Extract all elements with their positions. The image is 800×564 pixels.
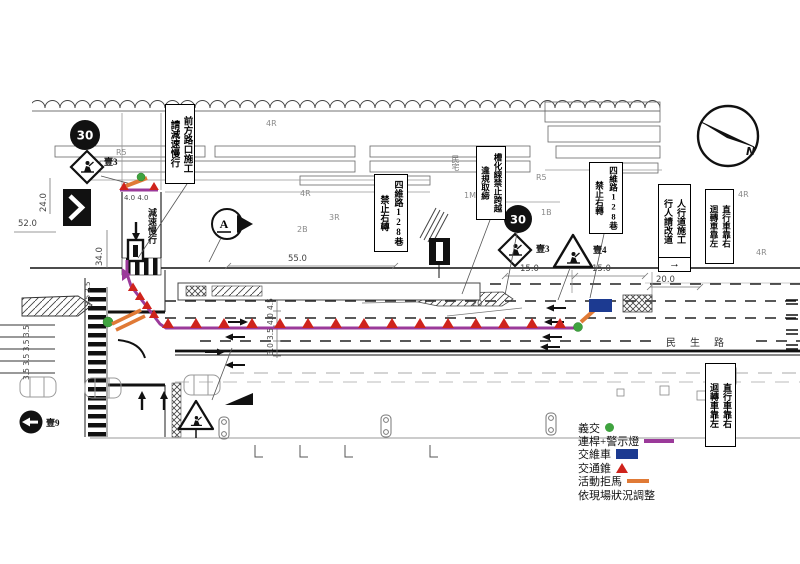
work-area-hatch bbox=[623, 295, 652, 312]
lane-arrow-left bbox=[540, 344, 560, 351]
lane-width: 3.5 bbox=[266, 328, 275, 340]
speed-limit-30-sign: 30 bbox=[504, 205, 532, 233]
dimension-24: 24.0 bbox=[40, 193, 49, 212]
sign-text: 槽化線禁止跨越 bbox=[492, 153, 504, 213]
traffic-cone bbox=[246, 318, 258, 328]
speed-limit-value: 30 bbox=[77, 129, 94, 143]
detour-route-a-sign: A bbox=[209, 209, 253, 262]
road-markings bbox=[22, 208, 652, 410]
chevron-sign bbox=[63, 189, 91, 226]
lane-width: 4.5 bbox=[266, 298, 275, 310]
lane-widths-44: 4.0 4.0 bbox=[124, 194, 149, 203]
traffic-cone bbox=[386, 318, 398, 328]
parked-scooter bbox=[381, 415, 391, 437]
sign-text: 四維路128巷 bbox=[392, 180, 405, 246]
traffic-cone bbox=[149, 182, 159, 190]
sign-front-construction: 前方路口施工 請減速慢行 bbox=[165, 104, 195, 184]
unit-label: 壹3 bbox=[536, 245, 550, 254]
building-label: R5 bbox=[116, 149, 127, 157]
building-label: 2B bbox=[297, 226, 308, 234]
sign-text: 請減速慢行 bbox=[168, 120, 180, 168]
sign-text: 人行道施工 bbox=[675, 199, 687, 244]
lane-arrow-up bbox=[138, 391, 146, 410]
speed-limit-value: 30 bbox=[510, 213, 526, 227]
parked-car bbox=[20, 377, 56, 397]
traffic-cone bbox=[358, 318, 370, 328]
slow-down-text: 減速慢行 bbox=[146, 208, 159, 258]
dimension-20-walk: 20.0 bbox=[656, 276, 675, 285]
sign-text: 違規取締 bbox=[479, 166, 491, 200]
sign-channelization-no-crossing: 槽化線禁止跨越 違規取締 bbox=[476, 146, 506, 220]
lane-width: 4.0 bbox=[266, 313, 275, 325]
house-label: 民宅 bbox=[450, 155, 461, 181]
traffic-cone bbox=[330, 318, 342, 328]
traffic-cone bbox=[190, 318, 202, 328]
dimension-34: 34.0 bbox=[96, 247, 105, 266]
building-label: 4R bbox=[756, 249, 767, 257]
sign-straight-keep-right-1: 直行車靠右 迴轉車靠左 bbox=[705, 189, 734, 264]
building-label: 1M bbox=[464, 192, 476, 200]
stall-widths: 3.5 3.5 3.5 3.5 bbox=[22, 325, 31, 380]
sign-text: 四維路128巷 bbox=[607, 166, 620, 230]
detour-arrow-icon: → bbox=[659, 257, 690, 271]
lane-width: 3.0 bbox=[266, 343, 275, 355]
building-label: 3R bbox=[329, 214, 340, 222]
building-scallop-edge bbox=[32, 98, 660, 111]
traffic-cone bbox=[470, 318, 482, 328]
sign-text: 禁止右轉 bbox=[378, 195, 391, 231]
lane-arrow-right bbox=[228, 319, 248, 326]
dimension-15a: 15.0 bbox=[520, 265, 539, 274]
traffic-cone bbox=[526, 318, 538, 328]
sign-text: 行人請改道 bbox=[662, 199, 674, 244]
unit-label: 壹3 bbox=[104, 158, 118, 167]
traffic-cone-swatch bbox=[616, 463, 628, 473]
traffic-cone bbox=[442, 318, 454, 328]
legend: 義交 連桿+警示燈 交維車 交通錐 活動拒馬 依現場狀況調整 bbox=[578, 421, 674, 501]
lane-arrow-down bbox=[132, 222, 140, 241]
guard-dot-swatch bbox=[605, 423, 614, 432]
construction-triangle-sign bbox=[554, 235, 592, 267]
sign-text: 直行車靠右 bbox=[721, 383, 733, 428]
sign-no-right-turn-2: 四維路128巷 禁止右轉 bbox=[589, 162, 623, 234]
stall-widths: 3.5 3.5 bbox=[84, 282, 93, 307]
speed-limit-30-sign: 30 bbox=[70, 120, 100, 150]
lane-arrow-left bbox=[542, 334, 562, 341]
dimension-15b: 15.0 bbox=[592, 265, 611, 274]
work-vehicle bbox=[589, 299, 612, 312]
lane-arrow-left bbox=[546, 305, 566, 312]
sign-straight-keep-right-2: 直行車靠右 迴轉車靠左 bbox=[705, 363, 736, 447]
traffic-cone bbox=[414, 318, 426, 328]
sign-sidewalk-construction: 人行道施工 行人請改道 → bbox=[658, 184, 691, 272]
traffic-guard-dot bbox=[137, 173, 145, 181]
sign-no-right-turn-1: 四維路128巷 禁止右轉 bbox=[374, 174, 408, 252]
construction-diamond-sign bbox=[499, 234, 531, 266]
lane-closed-box-sign bbox=[128, 240, 143, 261]
construction-triangle-sign bbox=[179, 401, 213, 438]
traffic-cone bbox=[302, 318, 314, 328]
building-label: 1B bbox=[541, 209, 552, 217]
lane-arrow-left bbox=[225, 334, 245, 341]
work-vehicle-swatch bbox=[616, 449, 638, 459]
traffic-control-plan: 30 30 bbox=[0, 0, 800, 564]
sign-text: 迴轉車靠左 bbox=[708, 205, 720, 248]
lane-arrow-up bbox=[160, 391, 168, 410]
dimension-52: 52.0 bbox=[18, 220, 37, 229]
traffic-cone bbox=[162, 318, 174, 328]
street-name: 民生路 bbox=[666, 334, 738, 349]
crosswalk-west bbox=[88, 287, 106, 437]
sign-text: 禁止右轉 bbox=[593, 181, 606, 215]
building-label: 4R bbox=[300, 190, 311, 198]
sign-text: 直行車靠右 bbox=[720, 205, 732, 248]
chevron-island bbox=[22, 296, 92, 316]
warning-light-rail-swatch bbox=[644, 439, 674, 443]
dimension-55: 55.0 bbox=[288, 255, 307, 264]
building-label: R5 bbox=[536, 174, 547, 182]
unit-label: 壹4 bbox=[593, 246, 607, 255]
traffic-cone bbox=[274, 318, 286, 328]
legend-row: 依現場狀況調整 bbox=[578, 488, 674, 501]
construction-diamond-sign bbox=[71, 151, 103, 183]
one-way-sign bbox=[20, 411, 43, 434]
divider-sign bbox=[429, 238, 450, 278]
traffic-guard-dot bbox=[574, 323, 583, 332]
parked-scooter bbox=[546, 413, 556, 435]
sign-text: 前方路口施工 bbox=[181, 116, 193, 173]
barricade-swatch bbox=[627, 479, 649, 483]
unit-label: 壹9 bbox=[46, 419, 60, 428]
legend-label: 依現場狀況調整 bbox=[578, 487, 655, 503]
sign-text: 迴轉車靠左 bbox=[708, 383, 720, 428]
traffic-cone bbox=[498, 318, 510, 328]
north-label: N bbox=[746, 145, 755, 158]
lane-arrow-left bbox=[225, 362, 245, 369]
gore-marking bbox=[225, 393, 253, 405]
dimension-20-cones: 20 bbox=[472, 299, 482, 308]
traffic-guard-dot bbox=[103, 317, 113, 327]
plan-drawing: 30 30 bbox=[0, 0, 800, 564]
building-label: 4R bbox=[266, 120, 277, 128]
building-label: 4R bbox=[738, 191, 749, 199]
detour-route-letter: A bbox=[220, 217, 229, 231]
parked-car bbox=[184, 375, 220, 395]
parked-scooter bbox=[219, 417, 229, 439]
